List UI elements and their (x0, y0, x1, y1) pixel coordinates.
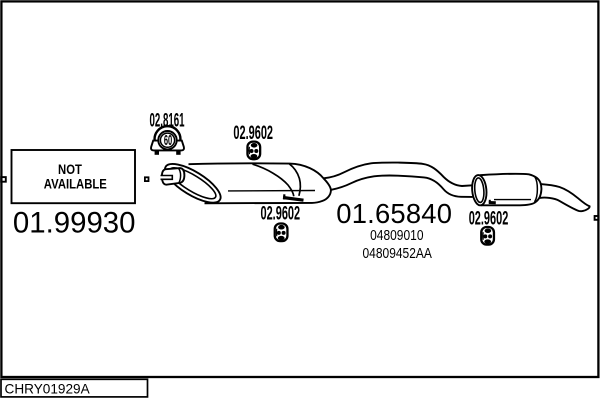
svg-text:02.9602: 02.9602 (260, 204, 300, 225)
svg-text:AVAILABLE: AVAILABLE (44, 176, 107, 191)
svg-text:60: 60 (164, 131, 173, 149)
svg-text:04809452AA: 04809452AA (363, 245, 433, 262)
svg-text:01.99930: 01.99930 (13, 207, 136, 240)
svg-text:02.8161: 02.8161 (149, 110, 184, 132)
svg-text:CHRY01929A: CHRY01929A (5, 381, 91, 396)
svg-text:NOT: NOT (58, 162, 82, 177)
svg-text:01.65840: 01.65840 (336, 198, 452, 229)
svg-text:04809010: 04809010 (370, 227, 424, 244)
